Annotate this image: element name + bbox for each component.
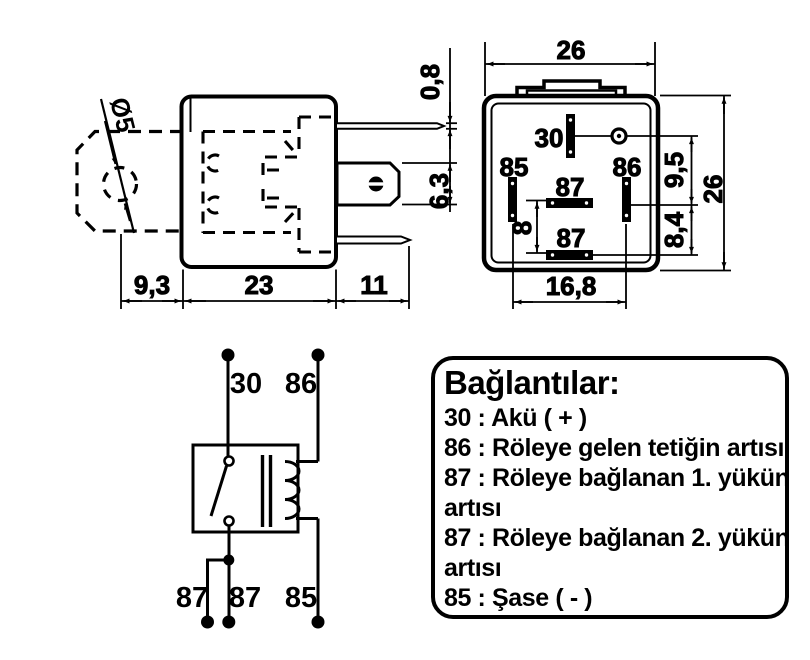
pin-label-87-top: 87: [556, 172, 585, 202]
schematic-label-87-mid: 87: [229, 582, 261, 614]
dim-label-87-gap: 8: [507, 221, 537, 235]
dim-label-86-to-87: 8,4: [659, 211, 689, 248]
dim-label-height-26: 26: [698, 175, 728, 204]
legend-row-30: 30 : Akü ( + ): [444, 403, 777, 433]
switch-symbol: [211, 457, 234, 526]
pin-label-30: 30: [535, 123, 564, 153]
dim-label-pin-span: 16,8: [546, 271, 597, 301]
schematic-label-85: 85: [285, 582, 317, 614]
pin-label-87-bottom: 87: [557, 223, 586, 253]
dim-label-tab-width: 9,3: [134, 270, 170, 300]
legend-row-87b-wrap: artısı: [444, 553, 777, 583]
dim-label-pin-length: 11: [360, 270, 388, 300]
schematic-label-86: 86: [285, 368, 317, 400]
relay-side-view: Ø5: [77, 48, 457, 309]
legend-title: Bağlantılar:: [444, 363, 777, 403]
schematic-label-87-left: 87: [176, 582, 208, 614]
dim-label-hole-dia: Ø5: [104, 94, 142, 135]
relay-bottom-view: 30 85 86 87 87 26 8: [484, 35, 731, 309]
dim-label-pin-thickness: 0,8: [415, 64, 445, 100]
dim-label-blade-width: 6,3: [424, 173, 454, 209]
legend-row-85: 85 : Şase ( - ): [444, 583, 777, 613]
relay-circuit-schematic: 30 86 87 87 85: [176, 349, 325, 629]
pin-label-85: 85: [500, 152, 529, 182]
rivet-mark: [612, 129, 626, 143]
legend-row-87b: 87 : Röleye bağlanan 2. yükün: [444, 523, 777, 553]
legend-row-87a-wrap: artısı: [444, 493, 777, 523]
legend-row-86: 86 : Röleye gelen tetiğin artısı: [444, 433, 777, 463]
dim-label-body-width: 23: [245, 270, 274, 300]
legend-box: Bağlantılar: 30 : Akü ( + ) 86 : Röleye …: [431, 356, 789, 619]
coil-symbol: [263, 455, 300, 527]
dim-label-width-26: 26: [557, 35, 586, 65]
relay-datasheet-page: Ø5: [0, 0, 810, 660]
schematic-label-30: 30: [230, 368, 262, 400]
pin-label-86: 86: [613, 152, 642, 182]
relay-body-outline: [182, 97, 337, 268]
dim-label-30-to-86: 9,5: [659, 152, 689, 188]
legend-row-87a: 87 : Röleye bağlanan 1. yükün: [444, 463, 777, 493]
relay-symbol-box: [193, 445, 298, 532]
